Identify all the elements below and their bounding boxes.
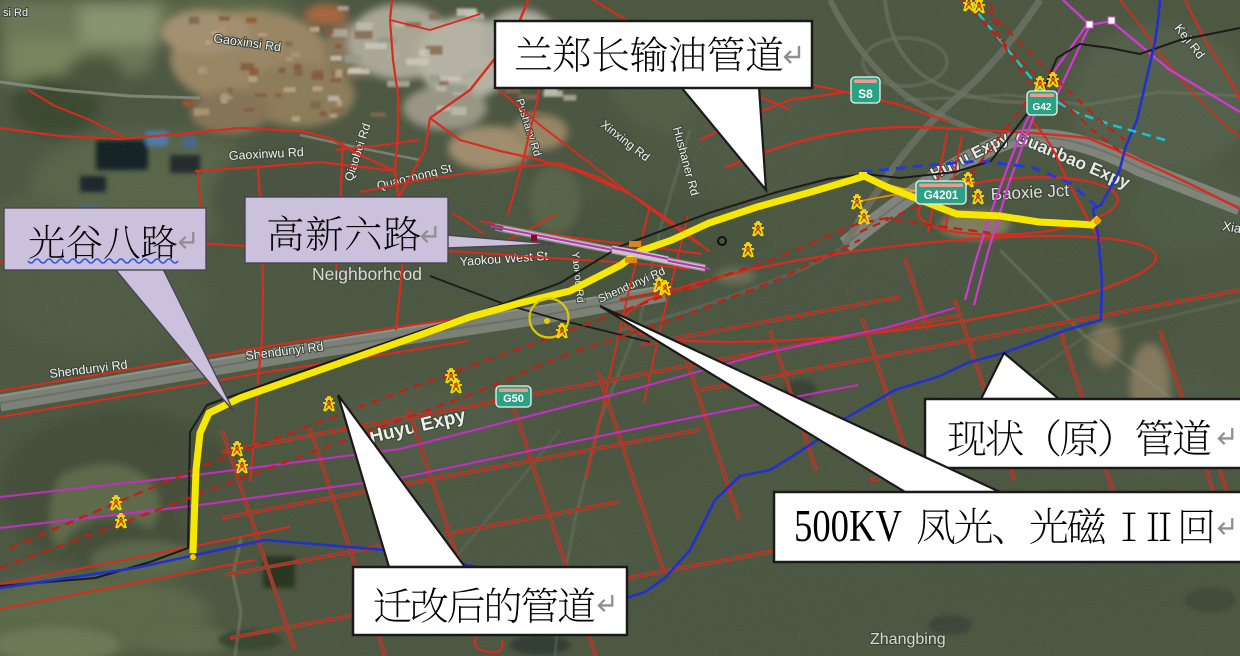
svg-text:S8: S8	[858, 87, 873, 101]
svg-text:G42: G42	[1033, 102, 1052, 113]
svg-text:Zhangbing: Zhangbing	[870, 631, 946, 648]
svg-text:G50: G50	[503, 393, 524, 405]
svg-text:G4201: G4201	[924, 190, 959, 202]
svg-text:500KV: 500KV	[794, 501, 902, 551]
svg-text:Neighborhood: Neighborhood	[312, 264, 422, 284]
svg-text:si Rd: si Rd	[3, 7, 28, 19]
